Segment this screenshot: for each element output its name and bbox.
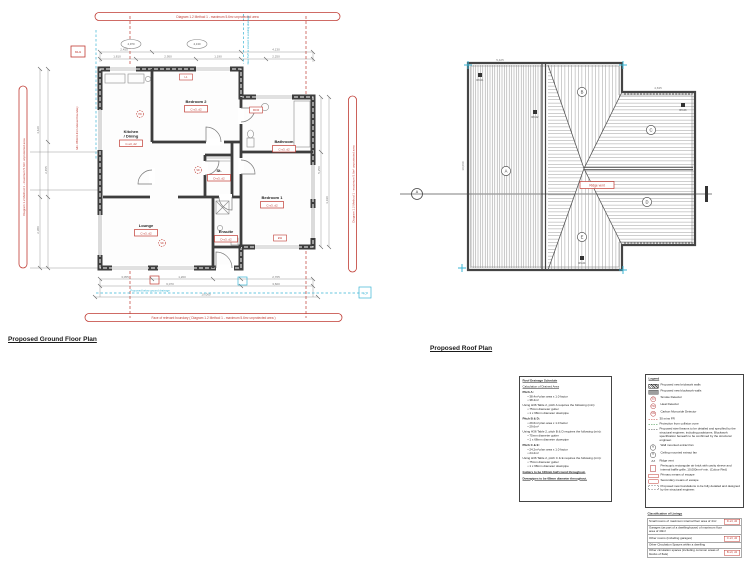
inspection-chamber-label: IC [364, 292, 368, 296]
roof-vent-icon [533, 110, 537, 114]
classification-text: Small rooms of maximum internal floor ar… [649, 520, 723, 524]
legend-label: Ceiling mounted extract fan [661, 452, 741, 456]
legend-row: CMCarbon Monoxide Detector [649, 410, 741, 416]
legend-row: 30 mins FR [649, 418, 741, 422]
classification-code [725, 545, 740, 546]
roof-drainage-schedule-panel: Roof Drainage Schedule Calculation of Dr… [519, 376, 612, 502]
drawing-sheet: Diagram 1.2 Method 1 - maximum 5.6m² unp… [0, 0, 750, 582]
room-label: Bedroom 1 [262, 195, 284, 200]
banner-left-text: Diagram 1.2 Method 1 - maximum 5.6m² unp… [22, 138, 26, 216]
dim-label: 5,250 [317, 166, 321, 174]
room-lining-code: D-s3, d2 [220, 237, 232, 241]
dim-label: 1,810 [113, 55, 121, 59]
roof-plan-title: Proposed Roof Plan [430, 345, 492, 352]
pitch-requirement: 1 x 68mm diameter downpipe [528, 412, 609, 416]
legend-label: 30 mins FR [660, 418, 741, 422]
room-label: Lounge [139, 223, 154, 228]
pitch-requirement: 1 x 68mm diameter downpipe [528, 465, 609, 469]
ridge-vent-label: Ridge vent [580, 182, 614, 189]
notes-footer-line: Gutters to be 100mm half round throughou… [523, 471, 609, 475]
wall-tag-label: EW [278, 236, 283, 240]
roof-plan-drawing: A Ridge vent [400, 30, 750, 292]
ground-floor-plan-title: Proposed Ground Floor Plan [8, 336, 97, 343]
pitch-requirements: 75mm diameter gutter1 x 68mm diameter do… [528, 435, 609, 443]
pitch-bullets: 24.2m² plan area x 1.0 factor24.2m² [528, 448, 609, 456]
grid-bubble-label: 4,130 [194, 42, 201, 46]
roof-vent-label: RV-01 [477, 79, 485, 82]
legend-row: Secondary means of escape [649, 479, 741, 484]
legend-label: Proposed new foundations to be fully det… [661, 485, 741, 493]
room-lining-code: C-s3, d2 [125, 142, 137, 146]
box-red-icon [649, 480, 659, 484]
room-label: St. [216, 168, 221, 173]
dim-label: 4,635 [654, 86, 662, 90]
legend-label: Secondary means of escape [661, 479, 741, 483]
roof-vent-icon [580, 256, 584, 260]
notes-footer: Gutters to be 100mm half round throughou… [523, 471, 609, 481]
box-dashed-icon [649, 485, 659, 489]
airbrick-icon [651, 465, 656, 472]
grid-bubbles: 4,9704,130 [121, 40, 207, 49]
dim-label: 2,380 [36, 226, 40, 234]
drainage-note: Proposed below ground drainage [130, 289, 170, 293]
dim-label: 1,190 [214, 55, 222, 59]
dim-label: 1,200 [178, 275, 186, 279]
dim-label: 2,250 [272, 55, 280, 59]
dim-label: 2,455 [120, 48, 128, 52]
notes-heading: Roof Drainage Schedule [523, 380, 609, 384]
pitch-bullet: 29.6m² [528, 426, 609, 430]
solid-icon [649, 390, 659, 395]
classification-panel: Classification of Linings Small rooms of… [645, 510, 744, 580]
dim-label: 4,420 [36, 126, 40, 134]
fan-wall-icon: ≋ [650, 444, 656, 450]
dim-label: 10,060 [461, 161, 465, 171]
legend-row: SDSmoke Detector [649, 396, 741, 402]
legend-row: Periscopic rectangular air brick with ca… [649, 465, 741, 473]
dim-label: 3,600 [272, 282, 280, 286]
legend-row: Proposed new blockwork walls [649, 390, 741, 395]
dash-green-icon [649, 425, 658, 426]
dim-label: 6,070 [166, 282, 174, 286]
hatch-icon [649, 384, 659, 389]
classification-text: Garages (as part of a dwellinghouse) of … [649, 526, 724, 534]
pitch-bullet: 38.4m² [528, 399, 609, 403]
room-lining-code: C-s3, d2 [278, 147, 290, 151]
room-label: Bedroom 2 [186, 99, 208, 104]
legend-row: Proposed steel beams to be detailed and … [649, 428, 741, 443]
legend-row: Proposed new brickwork walls [649, 383, 741, 388]
circle-cm-icon: CM [651, 411, 657, 417]
dim-label: 2,455 [44, 166, 48, 174]
ridge-icon: ∧∧ [649, 460, 658, 464]
classification-code: C-s3, d2 [724, 536, 740, 541]
roof-vent-label: RV-03 [680, 109, 688, 112]
pitch-using-note: Using H36 Table 2, pitch A requires the … [523, 404, 609, 408]
notes-footer-line: Downpipes to be 68mm diameter throughout… [523, 477, 609, 481]
roof-plane-letter: E [581, 235, 584, 240]
classification-row: Garages (as part of a dwellinghouse) of … [648, 525, 742, 535]
classification-code [725, 530, 740, 531]
legend-label: Periscopic rectangular air brick with ca… [661, 465, 741, 473]
circle-hd-icon: HD [651, 404, 657, 410]
legend-label: Proposed new blockwork walls [661, 390, 741, 394]
dim-label: 10,060 [201, 293, 211, 297]
legend-label: Heat Detector [661, 403, 741, 407]
ground-floor-plan-drawing: Diagram 1.2 Method 1 - maximum 5.6m² unp… [0, 0, 380, 335]
classification-row: Other rooms (including garages)C-s3, d2 [648, 535, 742, 542]
fan-ceiling-icon: ✳ [650, 452, 656, 458]
roof-plane-letter: B [581, 90, 584, 95]
legend-label: Proposed steel beams to be detailed and … [660, 428, 741, 443]
dim-label: 5,425 [496, 58, 504, 62]
banner-right-text: Diagram 1.2 Method 1 - maximum 5.6m² unp… [352, 145, 356, 223]
room-label: Bathroom [275, 139, 294, 144]
room-lining-code: C-s3, d2 [190, 107, 202, 111]
grid-bubble-label: 4,970 [128, 42, 135, 46]
legend-panel: Legend Proposed new brickwork wallsPropo… [645, 374, 744, 508]
notes-subheading: Calculation of Drained Area [523, 385, 609, 389]
legend-label: Proposed new brickwork walls [661, 383, 741, 387]
legend-label: Primary means of escape [661, 473, 741, 477]
wall-tag-label: FD30 [253, 108, 260, 112]
legend-row: HDHeat Detector [649, 403, 741, 409]
legend-row: Proposed new foundations to be fully det… [649, 485, 741, 493]
classification-text: Other rooms (including garages) [649, 537, 723, 541]
detector-label: SD [196, 169, 200, 172]
svp-note: New SVP to connect to existing drainage [246, 15, 250, 64]
roof-vent-icon [478, 73, 482, 77]
ridge-vent-text: Ridge vent [589, 184, 604, 188]
dim-label: 3,055 [121, 275, 129, 279]
dim-label: 4,130 [272, 48, 280, 52]
legend-row: Protection from collision zone [649, 423, 741, 427]
detector-label: HD [138, 113, 142, 116]
classification-row: Small rooms of maximum internal floor ar… [648, 518, 742, 525]
dash-dark-icon [649, 430, 658, 431]
roof-vent-icon [681, 103, 685, 107]
banner-bottom-text: Face of relevant boundary ( Diagram 1.2 … [151, 316, 275, 320]
pitch-requirements: 75mm diameter gutter1 x 68mm diameter do… [528, 408, 609, 416]
roof-vent-label: RV-02 [532, 116, 540, 119]
classification-code: B-s3, d2 [724, 550, 740, 555]
pitch-using-note: Using H36 Table 2, pitch B & D requires … [523, 430, 609, 434]
pitch-bullet: 24.2m² [528, 452, 609, 456]
notes-body: Pitch A:38.4m² plan area x 1.0 factor38.… [523, 391, 609, 469]
roof-plane-letter: D [645, 200, 648, 205]
legend-items: Proposed new brickwork wallsProposed new… [649, 383, 741, 492]
classification-text: Other Circulation Spaces within a dwelli… [649, 543, 724, 547]
dim-label: 2,765 [272, 275, 280, 279]
pitch-bullets: 29.6m² plan area x 1.0 factor29.6m² [528, 422, 609, 430]
legend-label: Smoke Detector [661, 396, 741, 400]
pitch-title: Pitch C & E: [523, 444, 609, 448]
dim-label: 2,950 [164, 55, 172, 59]
dash-red-icon [649, 420, 658, 421]
pitch-bullets: 38.4m² plan area x 1.0 factor38.4m² [528, 395, 609, 403]
classification-code: D-s3, d2 [724, 519, 740, 524]
legend-label: Ridge vent [660, 459, 741, 463]
pitch-title: Pitch B & D: [523, 418, 609, 422]
pitch-using-note: Using H36 Table 2, pitch C & E requires … [523, 457, 609, 461]
classification-rows: Small rooms of maximum internal floor ar… [648, 518, 742, 558]
section-marker-bar [705, 186, 708, 202]
roof-plane-letter: C [649, 128, 652, 133]
dim-label: 3,190 [325, 196, 329, 204]
legend-label: Protection from collision zone [660, 423, 741, 427]
classification-text: Other circulation spaces (including comm… [649, 549, 723, 557]
legend-row: ∧∧Ridge vent [649, 459, 741, 463]
room-lining-code: D-s3, d2 [213, 176, 225, 180]
circle-sd-icon: SD [651, 396, 657, 402]
pitch-title: Pitch A: [523, 391, 609, 395]
room-lining-code: C-s3, d2 [266, 203, 278, 207]
room-lining-code: C-s3, d2 [140, 231, 152, 235]
roof-plane-letter: A [505, 169, 508, 174]
roof-vent-label: RV-04 [579, 262, 587, 265]
pitch-requirement: 1 x 68mm diameter downpipe [528, 438, 609, 442]
pitch-requirements: 75mm diameter gutter1 x 68mm diameter do… [528, 461, 609, 469]
legend-label: Wall mounted extract fan [661, 444, 741, 448]
manhole-label: MH1 [75, 50, 82, 54]
boundary-note: Min. 850mm from relevant boundary [75, 106, 79, 150]
detector-label: SD [160, 242, 164, 245]
legend-heading: Legend [649, 378, 741, 382]
room-label: Ensuite [219, 229, 234, 234]
box-red-icon [649, 474, 659, 478]
legend-row: Primary means of escape [649, 473, 741, 478]
room-label: Kitchen/ Dining [124, 129, 139, 139]
classification-heading: Classification of Linings [648, 513, 742, 517]
legend-row: ✳Ceiling mounted extract fan [649, 452, 741, 459]
legend-row: ≋Wall mounted extract fan [649, 444, 741, 451]
classification-row: Other circulation spaces (including comm… [648, 548, 742, 558]
legend-label: Carbon Monoxide Detector [661, 410, 741, 414]
